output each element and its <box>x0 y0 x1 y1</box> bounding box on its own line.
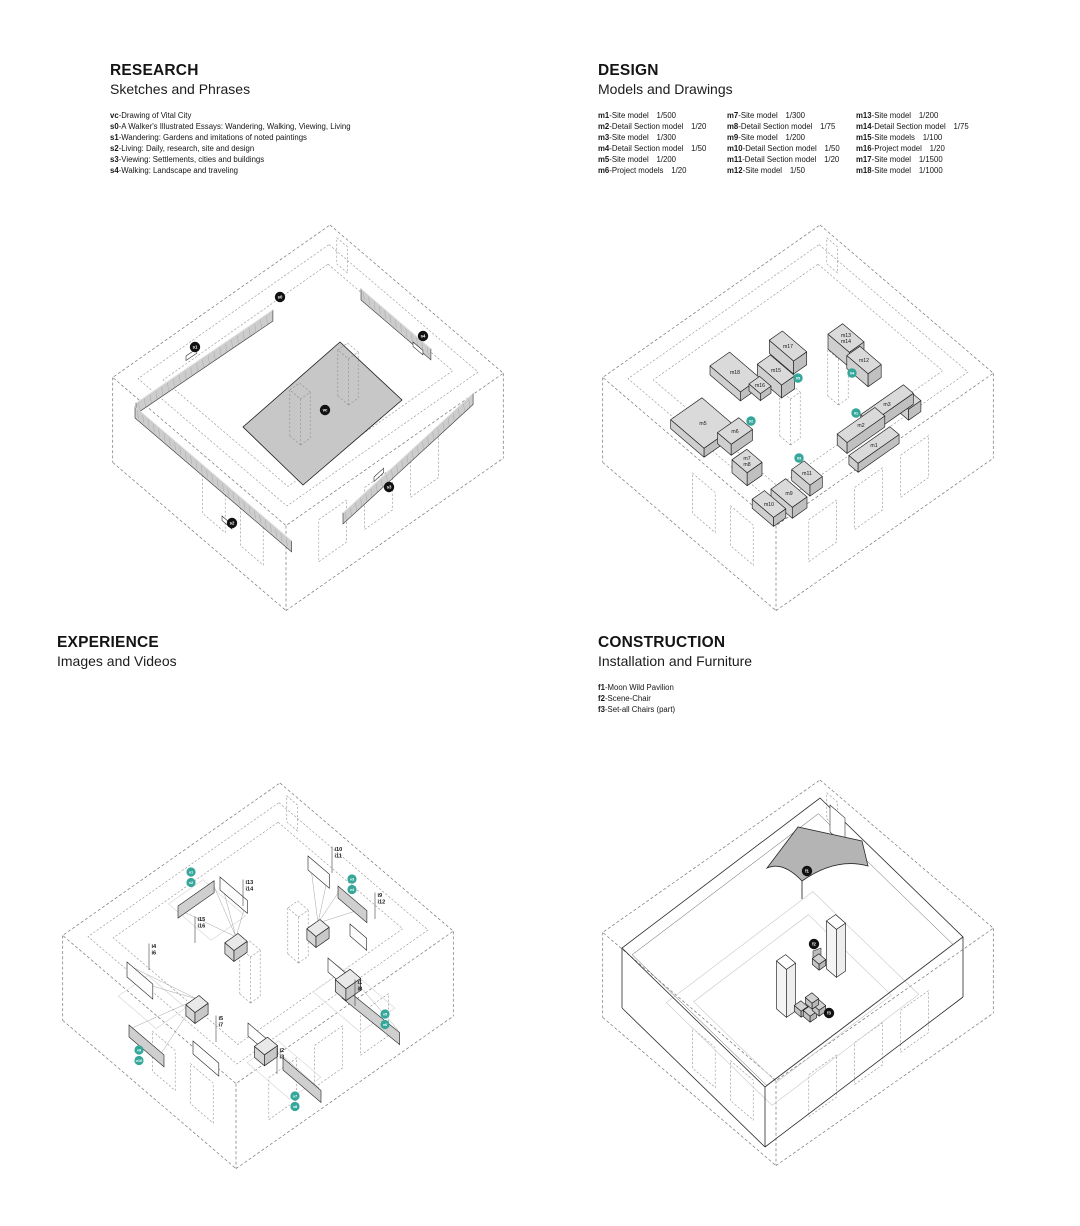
svg-text:s3: s3 <box>387 485 392 490</box>
svg-text:s0: s0 <box>278 295 283 300</box>
design-header: DESIGN Models and Drawings m1-Site model… <box>598 62 969 176</box>
svg-text:m3: m3 <box>883 402 890 408</box>
design-subtitle: Models and Drawings <box>598 81 969 97</box>
research-title: RESEARCH <box>110 62 351 80</box>
legend-item-m14: m14-Detail Section model 1/75 <box>856 122 969 133</box>
legend-item-vc: vc-Drawing of Vital City <box>110 111 351 122</box>
research-header: RESEARCH Sketches and Phrases vc-Drawing… <box>110 62 351 176</box>
svg-text:i15: i15 <box>198 917 206 923</box>
legend-item-s2: s2-Living: Daily, research, site and des… <box>110 144 351 155</box>
svg-text:m12: m12 <box>859 358 869 364</box>
legend-item-f2: f2-Scene-Chair <box>598 694 752 705</box>
legend-item-m11: m11-Detail Section model 1/20 <box>727 155 856 166</box>
design-legend-col-2: m7-Site model 1/300m8-Detail Section mod… <box>727 111 856 176</box>
svg-text:i10: i10 <box>335 847 343 853</box>
legend-item-f1: f1-Moon Wild Pavilion <box>598 683 752 694</box>
experience-diagram: i13i14i15i16i10i11i9i12i4i6i5i7i1i8i2i3v… <box>63 783 454 1169</box>
design-legend: m1-Site model 1/500m2-Detail Section mod… <box>598 111 969 176</box>
experience-subtitle: Images and Videos <box>57 653 177 669</box>
legend-item-m10: m10-Detail Section model 1/50 <box>727 144 856 155</box>
svg-text:m18: m18 <box>730 370 740 376</box>
svg-text:m17: m17 <box>783 344 793 350</box>
legend-item-s1: s1-Wandering: Gardens and imitations of … <box>110 133 351 144</box>
svg-text:i11: i11 <box>335 854 342 860</box>
svg-text:s4: s4 <box>421 334 426 339</box>
design-title: DESIGN <box>598 62 969 80</box>
legend-item-s0: s0-A Walker's Illustrated Essays: Wander… <box>110 122 351 133</box>
svg-text:m10: m10 <box>764 502 774 508</box>
legend-item-s3: s3-Viewing: Settlements, cities and buil… <box>110 155 351 166</box>
svg-text:m16: m16 <box>755 383 765 389</box>
svg-text:i14: i14 <box>246 887 255 893</box>
svg-text:v7: v7 <box>293 1094 297 1099</box>
svg-text:m15: m15 <box>771 368 781 374</box>
svg-text:i12: i12 <box>378 900 386 906</box>
experience-header: EXPERIENCE Images and Videos <box>57 634 177 669</box>
legend-item-m4: m4-Detail Section model 1/50 <box>598 144 727 155</box>
legend-item-f3: f3-Set-all Chairs (part) <box>598 705 752 716</box>
legend-item-m15: m15-Site models 1/100 <box>856 133 969 144</box>
legend-item-m9: m9-Site model 1/200 <box>727 133 856 144</box>
svg-text:f1: f1 <box>805 869 809 874</box>
svg-text:s2: s2 <box>230 521 235 526</box>
page: { "colors": { "teal": "#35a79a", "badge_… <box>0 0 1080 1226</box>
legend-item-s4: s4-Walking: Landscape and traveling <box>110 166 351 177</box>
svg-text:m6: m6 <box>731 429 738 435</box>
legend-item-m18: m18-Site model 1/1000 <box>856 166 969 177</box>
legend-item-m7: m7-Site model 1/300 <box>727 111 856 122</box>
svg-text:i8: i8 <box>358 987 363 993</box>
svg-text:i2: i2 <box>280 1048 285 1054</box>
design-legend-col-1: m1-Site model 1/500m2-Detail Section mod… <box>598 111 727 176</box>
research-legend: vc-Drawing of Vital Citys0-A Walker's Il… <box>110 111 351 176</box>
svg-text:f3: f3 <box>827 1011 831 1016</box>
legend-item-m2: m2-Detail Section model 1/20 <box>598 122 727 133</box>
svg-text:m5: m5 <box>699 421 706 427</box>
experience-title: EXPERIENCE <box>57 634 177 652</box>
legend-item-m1: m1-Site model 1/500 <box>598 111 727 122</box>
svg-text:m14: m14 <box>841 339 851 345</box>
svg-text:m8: m8 <box>743 462 750 468</box>
svg-text:i3: i3 <box>280 1055 285 1061</box>
design-diagram: m13m14m17m12m15m18m16m4m3m5m2m6m1m7m8m11… <box>603 225 994 611</box>
svg-text:i16: i16 <box>198 924 206 930</box>
svg-text:vc: vc <box>323 408 328 413</box>
legend-item-m3: m3-Site model 1/300 <box>598 133 727 144</box>
svg-text:s1: s1 <box>193 345 198 350</box>
construction-subtitle: Installation and Furniture <box>598 653 752 669</box>
svg-text:i5: i5 <box>219 1016 224 1022</box>
svg-text:i7: i7 <box>219 1023 224 1029</box>
legend-item-m12: m12-Site model 1/50 <box>727 166 856 177</box>
axonometric-diagrams: vcs0s1s2s3s4m13m14m17m12m15m18m16m4m3m5m… <box>0 0 1080 1226</box>
design-legend-col-3: m13-Site model 1/200m14-Detail Section m… <box>856 111 969 176</box>
svg-text:v10: v10 <box>136 1058 143 1063</box>
moon-wild-pavilion <box>767 827 868 881</box>
svg-text:m9: m9 <box>785 491 792 497</box>
construction-diagram: f1f2f3 <box>603 780 994 1166</box>
legend-item-m8: m8-Detail Section model 1/75 <box>727 122 856 133</box>
legend-item-m17: m17-Site model 1/1500 <box>856 155 969 166</box>
svg-text:i6: i6 <box>152 951 157 957</box>
svg-text:i9: i9 <box>378 893 383 899</box>
svg-text:m11: m11 <box>802 471 812 477</box>
svg-text:m2: m2 <box>857 423 864 429</box>
svg-text:i13: i13 <box>246 880 254 886</box>
legend-item-m6: m6-Project models 1/20 <box>598 166 727 177</box>
research-subtitle: Sketches and Phrases <box>110 81 351 97</box>
construction-title: CONSTRUCTION <box>598 634 752 652</box>
svg-text:i1: i1 <box>358 980 363 986</box>
legend-item-m5: m5-Site model 1/200 <box>598 155 727 166</box>
legend-item-m16: m16-Project model 1/20 <box>856 144 969 155</box>
construction-legend: f1-Moon Wild Pavilionf2-Scene-Chairf3-Se… <box>598 683 752 716</box>
construction-header: CONSTRUCTION Installation and Furniture … <box>598 634 752 716</box>
research-diagram: vcs0s1s2s3s4 <box>113 225 504 611</box>
svg-text:f2: f2 <box>812 942 816 947</box>
legend-item-m13: m13-Site model 1/200 <box>856 111 969 122</box>
svg-text:i4: i4 <box>152 944 158 950</box>
svg-text:m1: m1 <box>870 443 877 449</box>
